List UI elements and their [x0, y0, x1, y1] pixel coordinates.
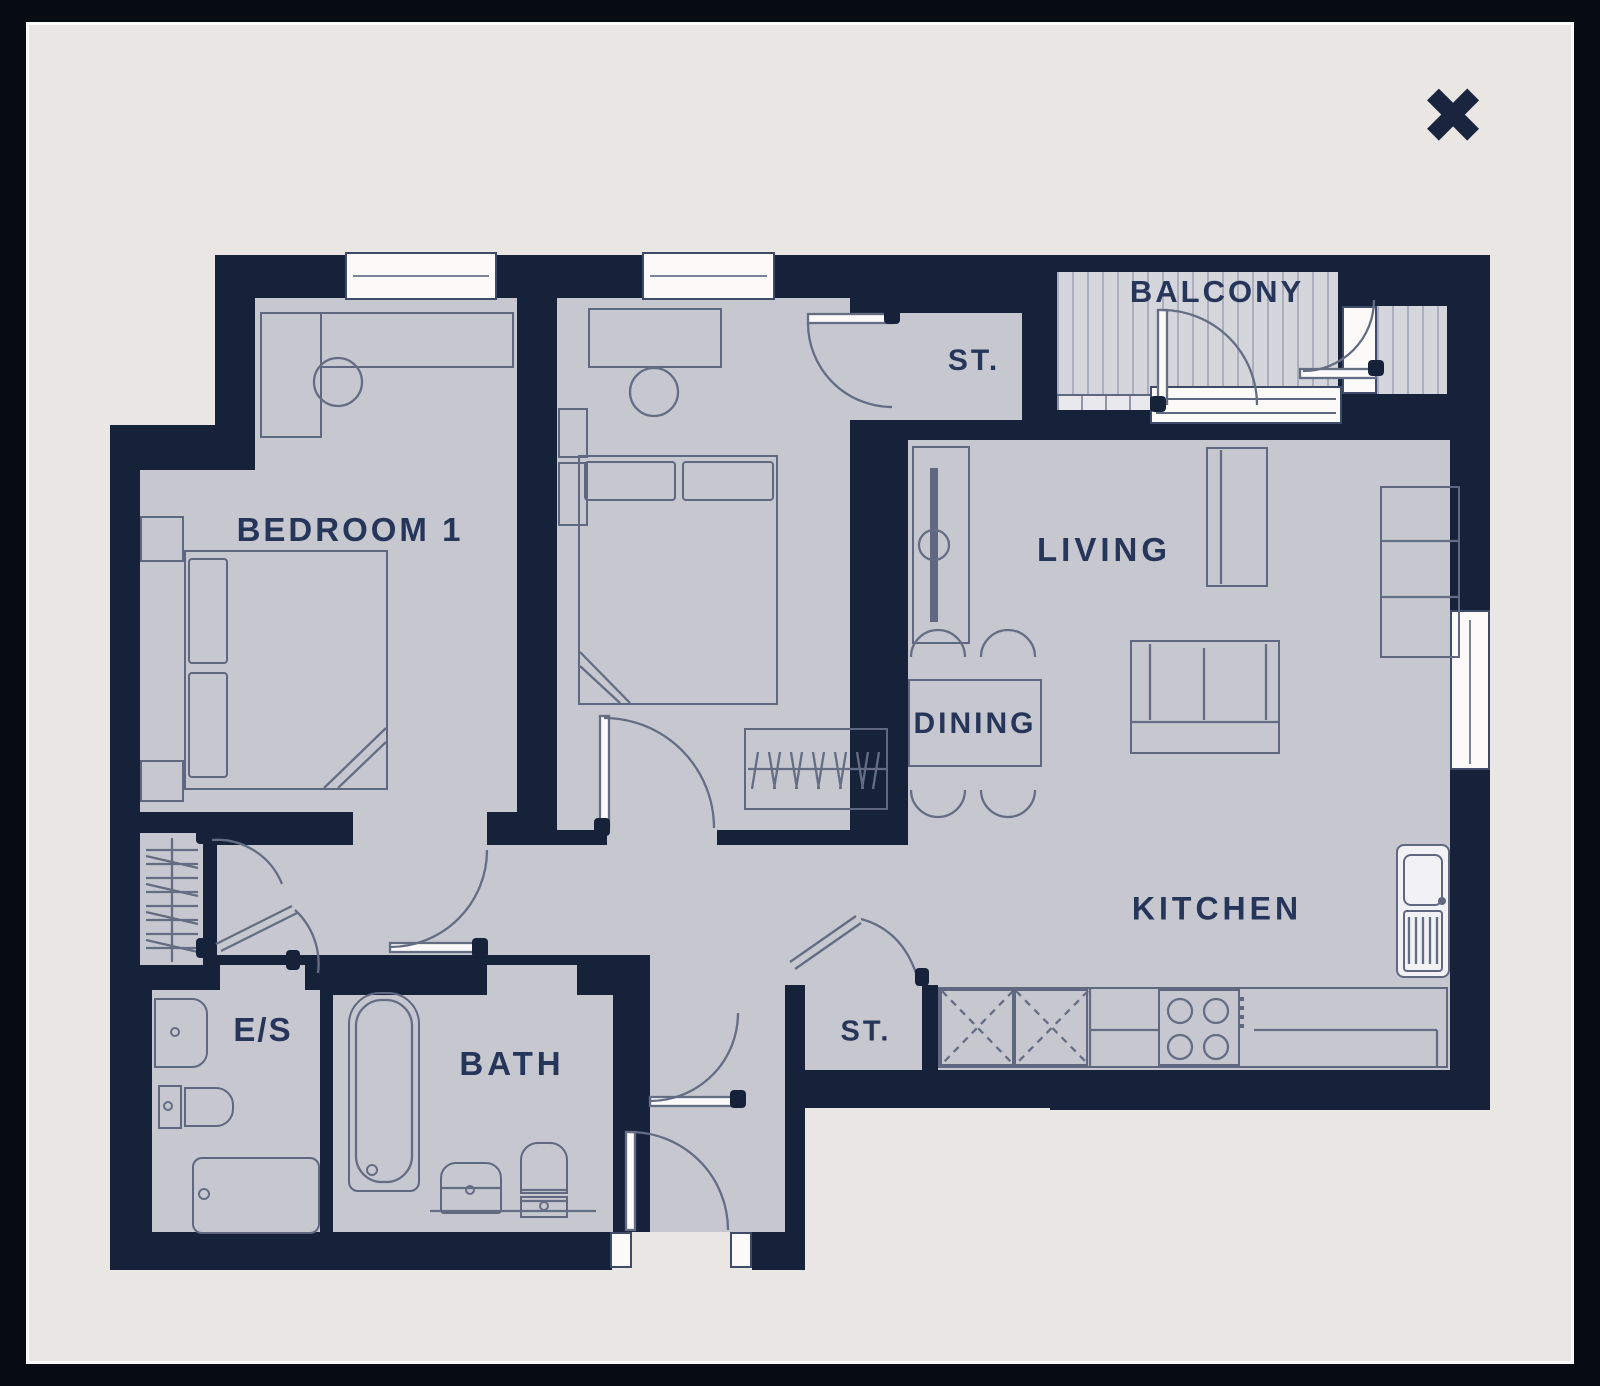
- toilet-cistern: [520, 1196, 568, 1218]
- room-label-ensuite: E/S: [233, 1011, 292, 1049]
- entry-door-jamb: [730, 1232, 752, 1268]
- sink-drainer: [1403, 910, 1443, 972]
- desk-return: [260, 312, 322, 438]
- bedside-table: [558, 462, 588, 526]
- doorway-bath: [487, 965, 577, 995]
- hall-connector-floor: [785, 955, 930, 985]
- appliance: [940, 989, 1014, 1066]
- doorway-bedroom1: [353, 812, 487, 845]
- tv-unit: [912, 446, 970, 644]
- balcony-door-threshold: [1150, 386, 1342, 424]
- bedside-table: [140, 760, 184, 802]
- room-label-dining: DINING: [914, 707, 1037, 741]
- toilet-bowl: [184, 1087, 234, 1127]
- window-glazing-line: [650, 275, 767, 277]
- room-label-bath: BATH: [459, 1045, 564, 1083]
- window-glazing-line: [353, 275, 489, 277]
- tv-screen: [930, 468, 938, 622]
- threshold-track-line: [1156, 398, 1336, 400]
- bathtub: [348, 992, 420, 1192]
- threshold-track-line: [1156, 412, 1336, 414]
- entry-door-jamb: [610, 1232, 632, 1268]
- sink-bowl: [1403, 854, 1443, 906]
- appliance: [1014, 989, 1088, 1066]
- washbasin: [154, 998, 208, 1068]
- sofa: [1380, 486, 1460, 658]
- exterior-notch: [805, 1108, 1050, 1272]
- bedside-table: [140, 516, 184, 562]
- bedroom2-window: [642, 252, 775, 300]
- shower-tray: [192, 1157, 320, 1234]
- washbasin: [440, 1162, 502, 1214]
- doorway-bedroom2: [607, 830, 717, 845]
- neighbor-balcony-decking: [1377, 306, 1447, 394]
- room-label-kitchen: KITCHEN: [1132, 891, 1302, 928]
- desk: [320, 312, 514, 368]
- pillow: [584, 461, 676, 501]
- room-label-bedroom1: BEDROOM 1: [237, 511, 464, 549]
- wall-segment: [922, 985, 938, 1070]
- room-label-storage-hall: ST.: [841, 1016, 892, 1049]
- pillow: [188, 558, 228, 664]
- hall-closet-floor: [140, 833, 203, 965]
- room-label-living: LIVING: [1037, 531, 1171, 569]
- room-label-balcony: BALCONY: [1130, 274, 1304, 310]
- toilet-cistern: [158, 1085, 182, 1129]
- toilet-bowl: [520, 1142, 568, 1194]
- hob: [1158, 989, 1240, 1066]
- bedside-table: [558, 408, 588, 458]
- doorway-ensuite: [220, 965, 305, 990]
- hallway-floor: [217, 845, 930, 955]
- bedroom1-window: [345, 252, 497, 300]
- sofa: [1130, 640, 1280, 754]
- floorplan-modal: ✖: [26, 22, 1574, 1364]
- wardrobe: [744, 728, 888, 810]
- pillow: [188, 672, 228, 778]
- room-label-storage-top: ST.: [948, 344, 1000, 378]
- desk: [588, 308, 722, 368]
- neighbor-balcony-divider: [1342, 306, 1377, 394]
- armchair: [1206, 447, 1268, 587]
- pillow: [682, 461, 774, 501]
- window-glazing-line: [1469, 620, 1471, 764]
- floor-plan: BEDROOM 1 ST. BALCONY LIVING DINING KITC…: [0, 0, 1600, 1386]
- entrance-hall-floor: [650, 955, 785, 1232]
